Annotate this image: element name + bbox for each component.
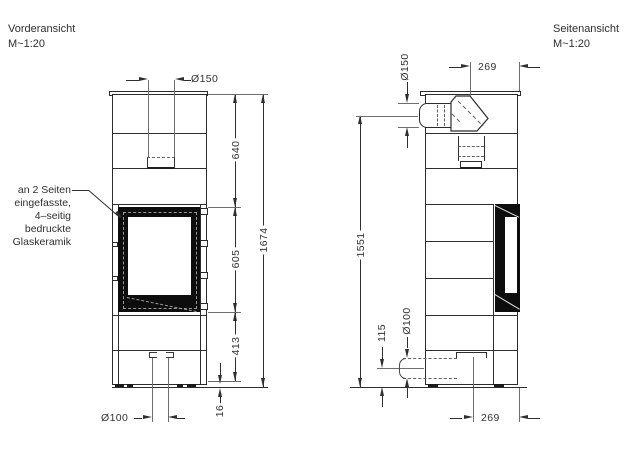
ext-line [398, 127, 419, 128]
side-air-pipe-hidden-line [403, 378, 457, 379]
technical-drawing-canvas: Vorderansicht M~1:20 Ø150 [0, 0, 624, 460]
arrowhead [405, 378, 409, 387]
arrowhead [405, 94, 409, 103]
flue-centerline [470, 62, 471, 96]
dim-line [407, 337, 408, 348]
side-foot [428, 384, 438, 387]
ext-line [519, 387, 520, 422]
dim-line [382, 347, 383, 359]
dim-line [407, 82, 408, 94]
dim-side-flue-diameter: Ø150 [399, 51, 411, 82]
ext-line [519, 62, 520, 91]
ext-line [356, 116, 418, 117]
dim-side-air-axis-height: 115 [376, 322, 388, 344]
floor-line [350, 387, 527, 388]
dim-line [450, 418, 462, 419]
dim-line [407, 136, 408, 148]
dim-side-flue-offset: 269 [478, 61, 497, 73]
side-joint-line [425, 350, 517, 351]
arrowhead [405, 127, 409, 136]
dim-line [449, 67, 461, 68]
arrowhead [461, 64, 470, 68]
arrowhead [519, 415, 528, 419]
side-pipe-clamp-line [444, 105, 445, 126]
side-view-scale: M~1:20 [553, 37, 590, 52]
side-view-title: Seitenansicht [553, 22, 619, 37]
side-air-socket-bracket [456, 352, 457, 358]
dim-line [407, 388, 408, 398]
side-air-socket-bracket [486, 352, 487, 358]
arrowhead [380, 387, 384, 396]
dim-line [382, 396, 383, 407]
side-foot [494, 384, 504, 387]
side-flue-hidden-line [458, 156, 484, 157]
side-flue-inner-pipe [458, 136, 459, 161]
side-flue-hidden-line [458, 146, 484, 147]
arrowhead [464, 415, 473, 419]
dim-side-air-diameter: Ø100 [401, 305, 413, 336]
side-joint-line [425, 278, 493, 279]
side-air-pipe-hidden-line [403, 358, 457, 359]
ext-line [473, 357, 474, 422]
side-flue-inner-pipe [484, 136, 485, 161]
side-flue-elbow [448, 92, 492, 136]
arrowhead [380, 359, 384, 368]
side-view: Seitenansicht M~1:20 [0, 0, 624, 460]
arrowhead [519, 64, 528, 68]
side-joint-line [425, 315, 517, 316]
dim-side-air-offset: 269 [481, 412, 500, 424]
side-pipe-clamp-line [437, 105, 438, 126]
ext-line [398, 103, 419, 104]
side-joint-line [425, 204, 493, 205]
dim-line [528, 418, 540, 419]
arrowhead [358, 378, 362, 387]
arrowhead [405, 349, 409, 358]
side-glass-window [505, 217, 517, 293]
dim-line [528, 67, 540, 68]
side-air-socket-bracket [456, 352, 486, 353]
side-flue-spigot [460, 161, 482, 169]
dim-side-flue-axis-height: 1551 [355, 231, 367, 260]
side-joint-line [425, 241, 493, 242]
side-air-pipe-mouth [399, 358, 406, 379]
